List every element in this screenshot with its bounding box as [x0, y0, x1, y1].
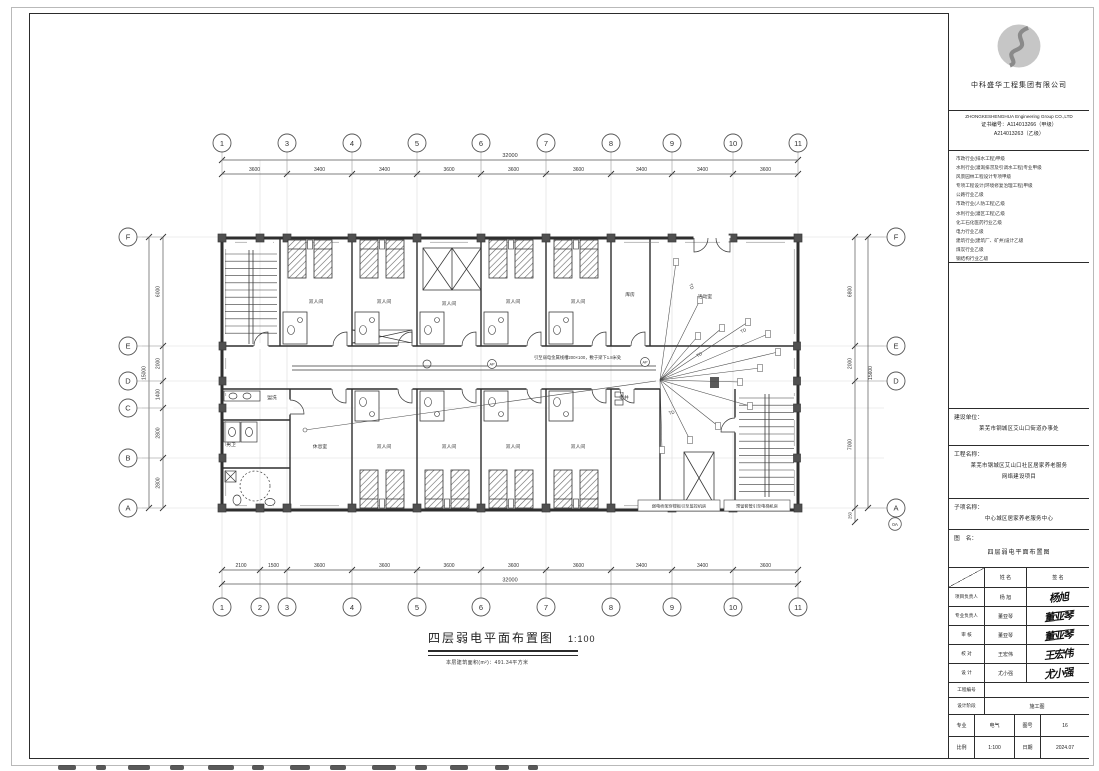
nightstand — [380, 499, 385, 508]
room-label: 双人间 — [442, 300, 457, 307]
dim-text: 15000 — [142, 366, 148, 380]
dim-text: 15600 — [868, 366, 874, 380]
qualification-line: 风景园林工程设计专项甲级 — [956, 172, 1089, 181]
qualification-line: 公路行业乙级 — [956, 190, 1089, 199]
grid-bubble-label: E — [893, 342, 898, 351]
signature-table: 姓 名 签 名 项目负责人 杨 旭 杨旭 专业负责人 董亚琴 董亚琴 审 核 董… — [949, 568, 1089, 759]
dim-text: 2000 — [156, 358, 162, 369]
room-label: 双人间 — [506, 298, 521, 305]
door-opening — [332, 386, 347, 392]
qualification-line: 化工石化医药行业乙级 — [956, 218, 1089, 227]
wc-stall — [241, 422, 257, 442]
sig-role: 设 计 — [949, 664, 985, 682]
beam-note: 引至弱电金属线槽200×100，敷于梁下1.8米处 — [534, 354, 622, 361]
bathroom — [355, 391, 379, 421]
scan-artifact — [495, 765, 509, 770]
grid-bubble-label: D — [893, 377, 899, 386]
dim-text: 6800 — [848, 286, 854, 297]
device-label: AP — [642, 361, 648, 365]
grid-bubble-label: 3 — [285, 139, 289, 148]
toilet — [229, 428, 236, 437]
room-label: 盥洗 — [267, 394, 277, 401]
cert-label: 证书编号： — [981, 122, 1007, 128]
sig-row: 设 计 尤小强 尤小强 — [949, 664, 1089, 683]
grid-bubble-label: F — [126, 233, 131, 242]
room-label: 双人间 — [442, 443, 457, 450]
sig-diag-cell — [949, 568, 985, 587]
grid-bubble-label: C — [125, 404, 131, 413]
column — [283, 504, 291, 512]
scale-row: 比例 1:100 日期 2024.07 — [949, 737, 1089, 759]
grid-bubble-label: 8 — [609, 603, 613, 612]
company-logo — [993, 20, 1045, 72]
mop-sink-cross — [225, 471, 236, 482]
outlet-box — [720, 325, 725, 332]
sig-row: 审 核 董亚琴 董亚琴 — [949, 626, 1089, 645]
subitem-value: 中心城区居家养老服务中心 — [949, 514, 1089, 522]
bed — [360, 240, 378, 278]
column — [542, 504, 550, 512]
outlet-box — [758, 365, 763, 372]
drawing-title: 四层弱电平面布置图 — [428, 631, 554, 645]
scan-artifact — [252, 765, 264, 770]
dim-text: 2800 — [156, 427, 162, 438]
handwritten-signature: 王宏伟 — [1043, 645, 1073, 663]
door-opening — [398, 343, 413, 349]
dim-text: 3400 — [636, 563, 647, 569]
sig-name: 王宏伟 — [985, 645, 1027, 663]
nightstand — [574, 240, 579, 249]
bed — [451, 470, 469, 508]
scan-artifact — [170, 765, 184, 770]
grid-bubble-label: 1 — [220, 139, 224, 148]
dim-text: 1500 — [268, 563, 279, 569]
sig-role: 项目负责人 — [949, 588, 985, 606]
sink — [243, 393, 251, 399]
qualification-line: 电力行业乙级 — [956, 227, 1089, 236]
junction-box — [710, 377, 719, 388]
qualification-line: 专项工程设计(环境修复治理工程)甲级 — [956, 181, 1089, 190]
sig-name: 杨 旭 — [985, 588, 1027, 606]
outlet-box — [303, 428, 307, 432]
dim-text: 3400 — [314, 167, 325, 173]
column — [794, 504, 802, 512]
sig-role: 审 核 — [949, 626, 985, 644]
bed — [425, 470, 443, 508]
scan-artifact — [208, 765, 234, 770]
column — [256, 234, 264, 242]
outlet-box — [660, 447, 665, 454]
wire-run — [660, 380, 690, 440]
bed — [314, 240, 332, 278]
bathroom — [355, 312, 379, 344]
room-label: 双人间 — [571, 443, 586, 450]
grid-bubble-label: 6 — [479, 139, 483, 148]
room-label: 休息室 — [313, 443, 328, 450]
company-name-cn: 中科盛华工程集团有限公司 — [949, 80, 1089, 90]
drawing-title-block: 四层弱电平面布置图1:100 本层建筑面积(m²)：491.34平方米 — [428, 629, 596, 666]
bed — [580, 470, 598, 508]
qualification-line: 煤炭行业乙级 — [956, 245, 1089, 254]
dim-text: 7000 — [848, 439, 854, 450]
drawing-name-label: 图 名： — [949, 530, 1089, 542]
door-opening — [333, 343, 348, 349]
grid-bubble-label: F — [894, 233, 899, 242]
sig-signature: 杨旭 — [1027, 588, 1089, 606]
bathroom — [420, 312, 444, 344]
grid-bubble-label: 7 — [544, 603, 548, 612]
grid-bubble-label: 1 — [220, 603, 224, 612]
outlet-box — [674, 259, 679, 266]
nightstand — [380, 240, 385, 249]
scale-value: 1:100 — [975, 737, 1015, 758]
dim-text: 3600 — [249, 167, 260, 173]
sig-header-row: 姓 名 签 名 — [949, 568, 1089, 588]
wire-label: TD — [688, 283, 695, 291]
grid-bubble-label: A — [125, 504, 130, 513]
toilet — [246, 428, 253, 437]
column — [218, 234, 226, 242]
company-name-en: ZHONGKESHENGHUA Engineering Group CO.,LT… — [949, 114, 1089, 119]
room-label: 双人间 — [506, 443, 521, 450]
dim-text: 3600 — [508, 167, 519, 173]
dim-text: 3400 — [636, 167, 647, 173]
project-value-2: 网络建设项目 — [949, 472, 1089, 480]
column — [668, 234, 676, 242]
room-label: 活动室 — [698, 293, 713, 300]
date-value: 2024.07 — [1041, 737, 1089, 758]
column — [477, 234, 485, 242]
qualification-line: 水利行业(灌区工程)乙级 — [956, 209, 1089, 218]
door-opening — [527, 343, 542, 349]
dim-text: 2100 — [235, 563, 246, 569]
room-label: 双人间 — [377, 298, 392, 305]
qualification-line: 钢结构行业乙级 — [956, 254, 1089, 263]
sig-role: 专业负责人 — [949, 607, 985, 625]
dim-text: 2000 — [848, 358, 854, 369]
project-label: 工程名称： — [949, 446, 1089, 458]
scan-artifact — [450, 765, 468, 770]
column — [413, 234, 421, 242]
handwritten-signature: 尤小强 — [1043, 664, 1073, 682]
device-label: AP — [489, 363, 495, 367]
door-opening — [398, 386, 413, 392]
cert-line-2: A214013263（乙级） — [949, 130, 1089, 137]
sheet-label: 图号 — [1015, 715, 1041, 736]
wire-run — [660, 380, 750, 406]
outlet-box — [776, 349, 781, 356]
qualification-line: 市政行业(人防工程)乙级 — [956, 199, 1089, 208]
drawing-sheet: 3200036003400340036003600360034003400360… — [0, 0, 1099, 771]
dim-text: 3600 — [573, 563, 584, 569]
sig-row: 专业负责人 董亚琴 董亚琴 — [949, 607, 1089, 626]
scan-artifact — [372, 765, 396, 770]
door-opening — [631, 343, 646, 349]
grid-bubble-label: 0A — [892, 522, 899, 528]
nightstand — [308, 240, 313, 249]
qualification-line: 市政行业(排水工程)甲级 — [956, 154, 1089, 163]
column — [477, 504, 485, 512]
dim-text: 3600 — [314, 563, 325, 569]
bed — [515, 470, 533, 508]
room-label: 男卫 — [226, 442, 236, 448]
outlet-box — [716, 423, 721, 430]
field-drawing-name: 图 名： 四层弱电平面布置图 — [949, 530, 1089, 568]
door-opening — [288, 400, 294, 415]
scan-artifact — [330, 765, 346, 770]
bathroom — [420, 391, 444, 421]
qualification-line: 建筑行业(建筑厂、矿井)设计乙级 — [956, 236, 1089, 245]
wash-counter — [224, 391, 260, 401]
cert-line-1: 证书编号：A114013266（甲级） — [949, 121, 1089, 128]
major-label: 专业 — [949, 715, 975, 736]
grid-bubble-label: 2 — [258, 603, 262, 612]
column — [607, 234, 615, 242]
handwritten-signature: 杨旭 — [1048, 589, 1068, 606]
title-block: 中科盛华工程集团有限公司 ZHONGKESHENGHUA Engineering… — [948, 13, 1089, 759]
dim-text: 3600 — [443, 167, 454, 173]
bed — [554, 470, 572, 508]
outlet-box — [748, 403, 753, 410]
sig-name: 尤小强 — [985, 664, 1027, 682]
wire-run — [660, 262, 676, 380]
outlet-box — [688, 437, 693, 444]
room-label: 库房 — [625, 291, 635, 298]
company-header: 中科盛华工程集团有限公司 — [949, 13, 1089, 111]
wheelchair-turning-circle — [240, 471, 270, 501]
grid-bubble-label: D — [125, 377, 131, 386]
door-opening — [733, 418, 739, 433]
sig-col-name: 姓 名 — [985, 568, 1027, 587]
major-value: 电气 — [975, 715, 1015, 736]
area-note: 本层建筑面积(m²)：491.34平方米 — [446, 659, 596, 666]
dim-text: 1400 — [156, 389, 162, 400]
bathroom — [549, 312, 573, 344]
bed — [386, 240, 404, 278]
grid-bubble-label: 8 — [609, 139, 613, 148]
sig-signature: 尤小强 — [1027, 664, 1089, 682]
qualification-list: 市政行业(排水工程)甲级水利行业(灌溉排涝及引调水工程)专业甲级风景园林工程设计… — [949, 151, 1089, 263]
grid-bubble-label: 4 — [350, 139, 354, 148]
fixtures — [218, 234, 802, 512]
outlet-box — [766, 331, 771, 338]
scan-artifact — [128, 765, 150, 770]
grid-bubble-label: 9 — [670, 603, 674, 612]
dim-text: 3600 — [760, 563, 771, 569]
sig-name: 董亚琴 — [985, 607, 1027, 625]
door-opening — [694, 236, 731, 242]
bed — [489, 470, 507, 508]
nightstand — [509, 240, 514, 249]
stage-row: 设计阶段 施工图 — [949, 698, 1089, 715]
field-project: 工程名称： 莱芜市钢城区艾山口社区居家养老服务 网络建设项目 — [949, 446, 1089, 499]
bathroom — [283, 312, 307, 344]
sink — [229, 393, 237, 399]
wire-run — [660, 334, 768, 380]
door-opening — [462, 386, 477, 392]
sig-name: 董亚琴 — [985, 626, 1027, 644]
scan-artifact — [290, 765, 310, 770]
bed — [386, 470, 404, 508]
column — [219, 454, 226, 462]
qualification-line: 水利行业(灌溉排涝及引调水工程)专业甲级 — [956, 163, 1089, 172]
column — [794, 454, 801, 462]
accessible-toilet — [233, 495, 241, 505]
date-label: 日期 — [1015, 737, 1041, 758]
subitem-label: 子项名称： — [949, 499, 1089, 511]
room-label: 电井 — [619, 394, 629, 401]
column — [794, 342, 801, 350]
outlet-box — [696, 333, 701, 340]
grid-bubble-label: A — [893, 504, 898, 513]
wire-label: TD — [668, 409, 676, 416]
cert-no-1: A114013266（甲级） — [1007, 122, 1057, 128]
field-client: 建设单位： 莱芜市钢城区艾山口街道办事处 — [949, 409, 1089, 446]
dim-text: 3400 — [697, 563, 708, 569]
column — [413, 504, 421, 512]
column — [794, 234, 802, 242]
column — [256, 504, 264, 512]
stage-label: 设计阶段 — [949, 698, 985, 714]
bed — [554, 240, 572, 278]
drawing-title-row: 四层弱电平面布置图1:100 — [428, 629, 596, 647]
grid-bubble-label: E — [125, 342, 130, 351]
bed — [515, 240, 533, 278]
bed — [489, 240, 507, 278]
bed — [288, 240, 306, 278]
grid-bubble-label: 6 — [479, 603, 483, 612]
nightstand — [509, 499, 514, 508]
bathroom — [484, 391, 508, 421]
handwritten-signature: 董亚琴 — [1043, 607, 1073, 625]
grid-bubble-label: 11 — [794, 139, 802, 148]
project-value-1: 莱芜市钢城区艾山口社区居家养老服务 — [949, 461, 1089, 469]
nightstand — [574, 499, 579, 508]
sig-col-sign: 签 名 — [1027, 568, 1089, 587]
door-opening — [592, 343, 607, 349]
wire-label: TD — [740, 327, 748, 334]
drawing-name-value: 四层弱电平面布置图 — [949, 547, 1089, 556]
grid-bubble-label: B — [125, 454, 130, 463]
sheet-value: 16 — [1041, 715, 1089, 736]
shaft-crossed-box — [684, 452, 714, 504]
wc-stall — [224, 422, 240, 442]
grid-bubble-label: 3 — [285, 603, 289, 612]
dim-text: 3400 — [379, 167, 390, 173]
sig-role: 校 对 — [949, 645, 985, 663]
dim-text: 3400 — [697, 167, 708, 173]
door-opening — [527, 386, 542, 392]
blank-box — [949, 263, 1089, 409]
column — [348, 504, 356, 512]
column — [219, 404, 226, 412]
outlet-box — [738, 379, 743, 386]
scan-artifact — [58, 765, 76, 770]
sig-row: 校 对 王宏伟 王宏伟 — [949, 645, 1089, 664]
dim-text: 3600 — [573, 167, 584, 173]
room-label: 双人间 — [377, 443, 392, 450]
project-no-value — [985, 683, 1089, 697]
certificate-box: ZHONGKESHENGHUA Engineering Group CO.,LT… — [949, 111, 1089, 151]
wire-run — [660, 380, 718, 426]
dim-text: 6000 — [156, 286, 162, 297]
note-text: 弱电桥架穿楼板引至监控机房 — [652, 503, 706, 510]
door-opening — [620, 386, 635, 392]
bathroom — [484, 312, 508, 344]
project-no-row: 工程编号 — [949, 683, 1089, 698]
wire-run — [660, 328, 722, 380]
grid-bubble-label: 7 — [544, 139, 548, 148]
column — [607, 504, 615, 512]
nightstand — [445, 499, 450, 508]
room-label: 双人间 — [571, 298, 586, 305]
accessible-sink — [265, 499, 275, 506]
door-opening — [254, 343, 269, 349]
sig-row: 项目负责人 杨 旭 杨旭 — [949, 588, 1089, 607]
scan-artifact — [415, 765, 427, 770]
project-no-label: 工程编号 — [949, 683, 985, 697]
room-label: 双人间 — [309, 298, 324, 305]
grid-bubble-label: 4 — [350, 603, 354, 612]
column — [348, 234, 356, 242]
grid-bubble-label: 10 — [729, 139, 737, 148]
grid-bubble-label: 5 — [415, 603, 419, 612]
dim-text: 3600 — [379, 563, 390, 569]
column — [794, 404, 801, 412]
bed — [360, 470, 378, 508]
client-label: 建设单位： — [949, 409, 1089, 421]
column — [218, 504, 226, 512]
column — [219, 342, 226, 350]
sig-signature: 董亚琴 — [1027, 607, 1089, 625]
major-row: 专业 电气 图号 16 — [949, 715, 1089, 737]
client-value: 莱芜市钢城区艾山口街道办事处 — [949, 424, 1089, 432]
cable-tray — [292, 366, 656, 370]
door-opening — [462, 343, 477, 349]
outlet-box — [746, 319, 751, 326]
dim-text: 3600 — [508, 563, 519, 569]
annotations: 3200036003400340036003600360034003400360… — [119, 134, 905, 616]
column — [219, 377, 226, 385]
dim-text: 2800 — [156, 477, 162, 488]
grid-bubble-label: 9 — [670, 139, 674, 148]
stage-value: 施工图 — [985, 698, 1089, 714]
sig-signature: 董亚琴 — [1027, 626, 1089, 644]
crossed-box-elevator — [423, 248, 481, 290]
drawing-scale: 1:100 — [568, 634, 596, 644]
note-text: 预留套管引至电梯机房 — [736, 503, 778, 510]
wire-run — [660, 300, 700, 380]
floor-outlet — [423, 360, 431, 368]
sig-signature: 王宏伟 — [1027, 645, 1089, 663]
scale-label: 比例 — [949, 737, 975, 758]
scan-artifact — [96, 765, 106, 770]
scan-artifact — [528, 765, 538, 770]
drawing-title-underline — [428, 650, 578, 656]
dim-text: 3600 — [760, 167, 771, 173]
dim-text: 32000 — [502, 153, 517, 159]
dim-text: 250 — [848, 511, 853, 519]
dim-text: 3600 — [443, 563, 454, 569]
dim-text: 32000 — [502, 578, 517, 584]
bed — [580, 240, 598, 278]
column — [794, 377, 801, 385]
grid-bubble-label: 10 — [729, 603, 737, 612]
handwritten-signature: 董亚琴 — [1043, 626, 1073, 644]
grid-bubble-label: 11 — [794, 603, 802, 612]
column — [542, 234, 550, 242]
grid-bubble-label: 5 — [415, 139, 419, 148]
